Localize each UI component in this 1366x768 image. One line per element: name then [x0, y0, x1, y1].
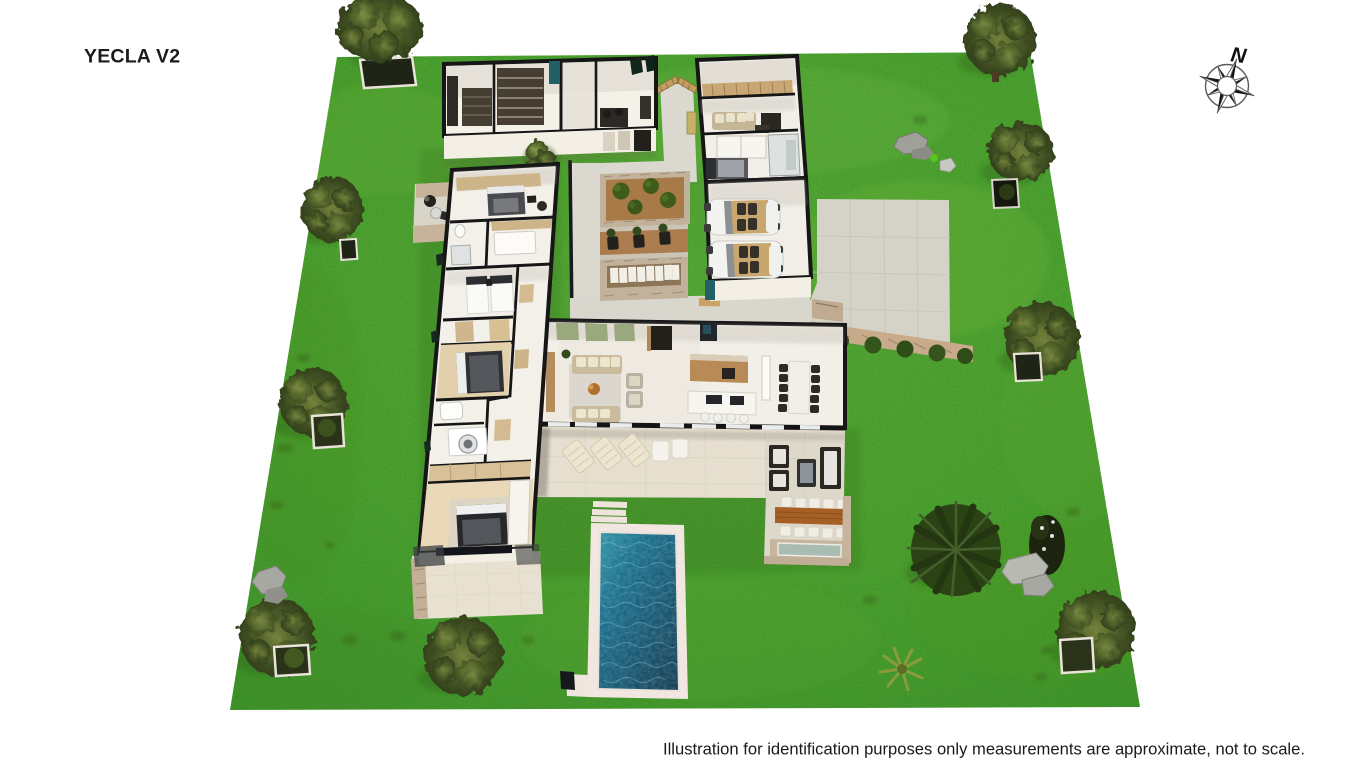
svg-text:YECLA V2: YECLA V2	[84, 46, 180, 68]
svg-text:Illustration for identificatio: Illustration for identification purposes…	[663, 740, 1305, 759]
